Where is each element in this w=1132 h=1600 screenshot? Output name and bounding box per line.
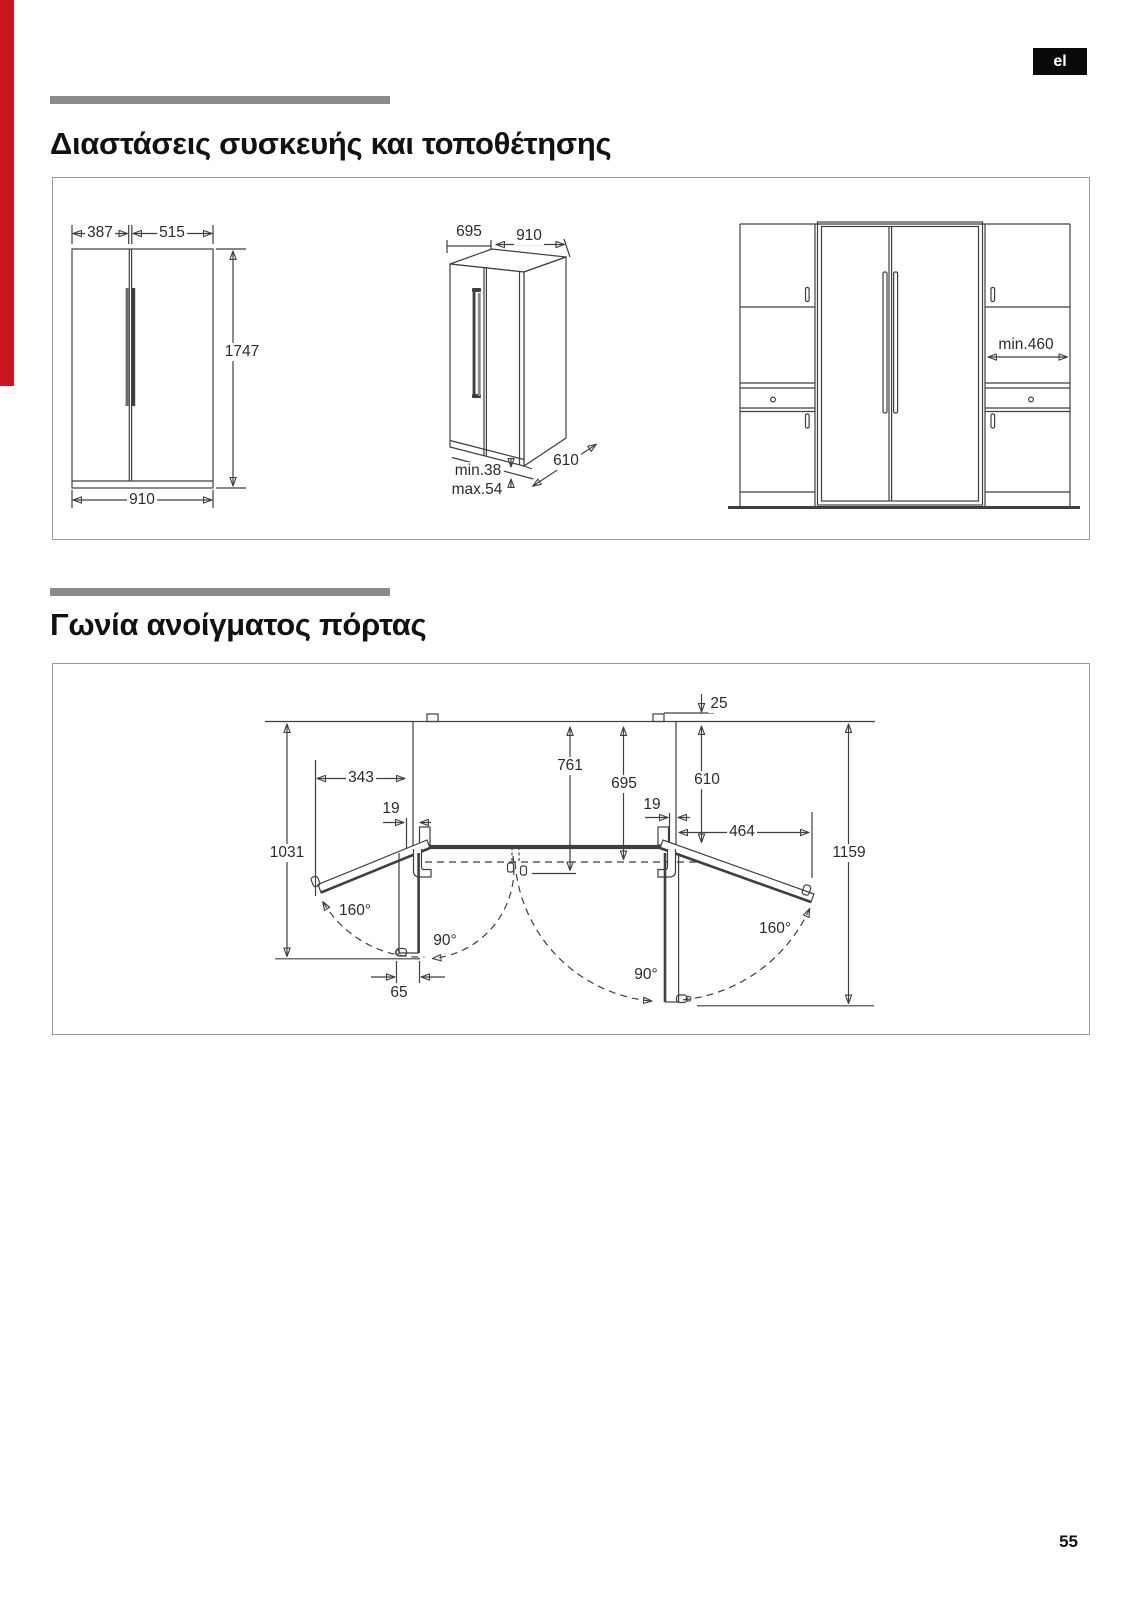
door-angle-diagram <box>265 694 875 1006</box>
dim-door-right-width: 515 <box>157 224 187 242</box>
angle-right-160: 160° <box>757 920 793 938</box>
front-view-diagram <box>72 225 246 508</box>
dim-right-swing-depth: 1159 <box>830 844 867 862</box>
angle-left-160: 160° <box>337 902 373 920</box>
dim-rear-gap: 25 <box>708 695 729 713</box>
dim-side-clearance: min.460 <box>996 336 1055 354</box>
dim-left-swing-depth: 1031 <box>268 844 306 862</box>
dim-base-depth: 610 <box>551 452 581 470</box>
dim-door-left-width: 387 <box>85 224 115 242</box>
dim-left-door-projection: 343 <box>346 769 376 787</box>
dim-total-width: 910 <box>127 491 157 509</box>
installation-view-diagram <box>728 222 1080 508</box>
dim-clearance-min: min.38 <box>453 462 504 480</box>
dim-right-door-projection: 464 <box>727 823 757 841</box>
dim-clearance-max: max.54 <box>450 481 505 499</box>
dim-left-hinge-offset: 19 <box>380 800 401 818</box>
angle-left-90: 90° <box>431 932 458 950</box>
manual-page: el Διαστάσεις συσκευής και τοποθέτησης Γ… <box>0 0 1132 1600</box>
dim-body-depth: 610 <box>692 771 722 789</box>
dim-depth: 695 <box>454 223 484 241</box>
angle-right-90: 90° <box>632 966 659 984</box>
dim-door-thickness: 65 <box>388 984 409 1002</box>
dim-right-hinge-offset: 19 <box>641 796 662 814</box>
dim-depth-with-door: 761 <box>555 757 585 775</box>
perspective-view-diagram <box>447 239 596 488</box>
dim-depth-with-hinge: 695 <box>609 775 639 793</box>
dim-width-perspective: 910 <box>514 227 544 245</box>
dim-height: 1747 <box>223 343 261 361</box>
